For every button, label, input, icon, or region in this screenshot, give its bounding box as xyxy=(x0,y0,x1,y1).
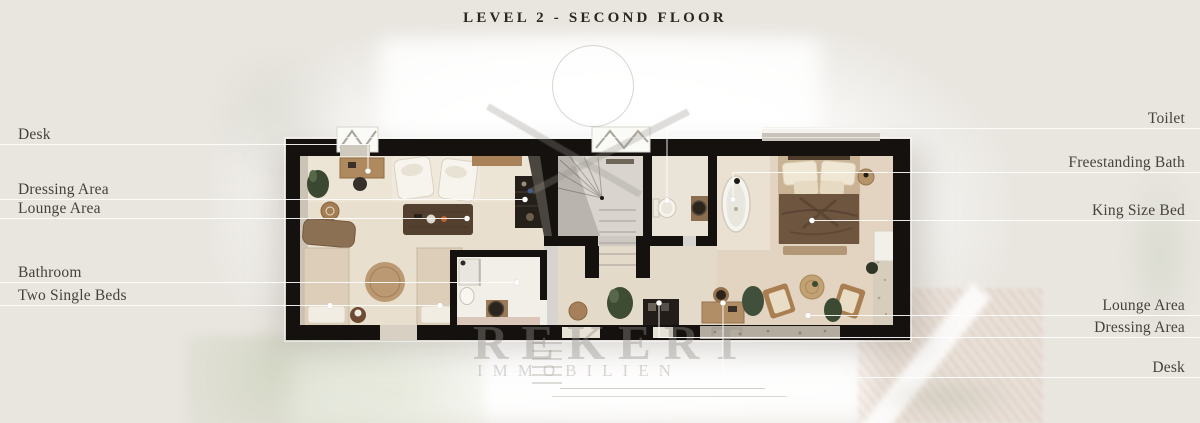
page-title: LEVEL 2 - SECOND FLOOR xyxy=(0,10,1190,27)
label-dressing-left: Dressing Area xyxy=(18,181,109,198)
label-toilet-right: Toilet xyxy=(1148,110,1185,127)
leader-lines xyxy=(0,0,1200,423)
leader-dots xyxy=(327,168,815,318)
label-dressing-right: Dressing Area xyxy=(1094,319,1185,336)
label-bath-right: Freestanding Bath xyxy=(1068,154,1185,171)
leader-bath-right xyxy=(733,173,1200,197)
leader-desk-right xyxy=(723,306,1200,378)
floorplan-page: REKERT IMMOBILIEN xyxy=(0,0,1200,423)
label-lounge-left: Lounge Area xyxy=(18,200,101,217)
label-lounge-right: Lounge Area xyxy=(1102,297,1185,314)
leader-desk-left xyxy=(0,145,368,169)
label-king-bed-right: King Size Bed xyxy=(1092,202,1185,219)
label-bathroom-left: Bathroom xyxy=(18,264,82,281)
label-single-beds-left: Two Single Beds xyxy=(18,287,127,304)
label-desk-left: Desk xyxy=(18,126,51,143)
label-desk-right: Desk xyxy=(1152,359,1185,376)
